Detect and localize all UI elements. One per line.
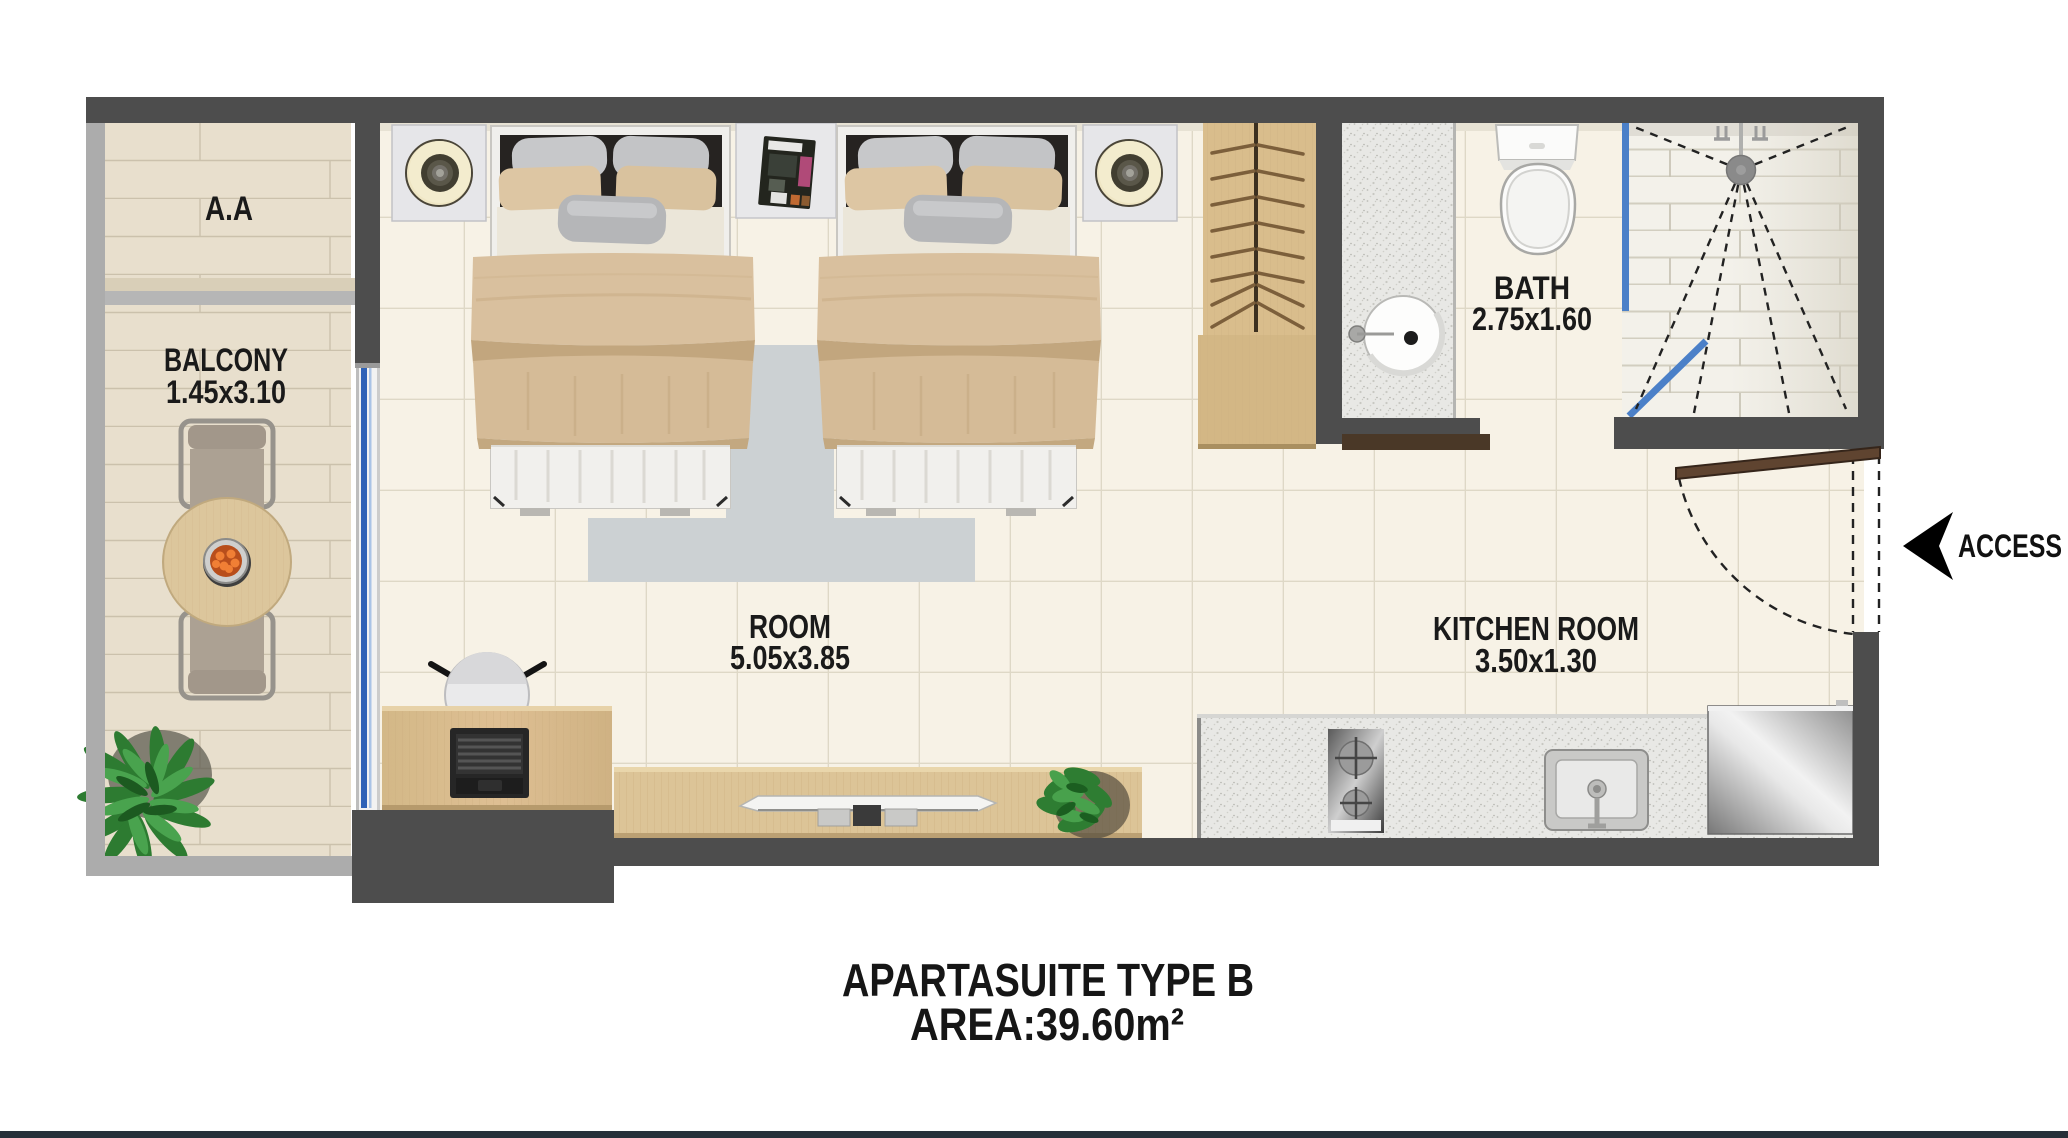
svg-text:3.50x1.30: 3.50x1.30 [1475, 642, 1597, 679]
svg-text:2.75x1.60: 2.75x1.60 [1472, 301, 1592, 337]
svg-text:1.45x3.10: 1.45x3.10 [166, 374, 286, 410]
svg-text:BALCONY: BALCONY [164, 342, 288, 378]
svg-text:ACCESS: ACCESS [1958, 528, 2062, 564]
svg-text:AREA:39.60m²: AREA:39.60m² [910, 999, 1184, 1050]
svg-text:5.05x3.85: 5.05x3.85 [730, 639, 850, 676]
svg-text:A.A: A.A [205, 190, 253, 228]
